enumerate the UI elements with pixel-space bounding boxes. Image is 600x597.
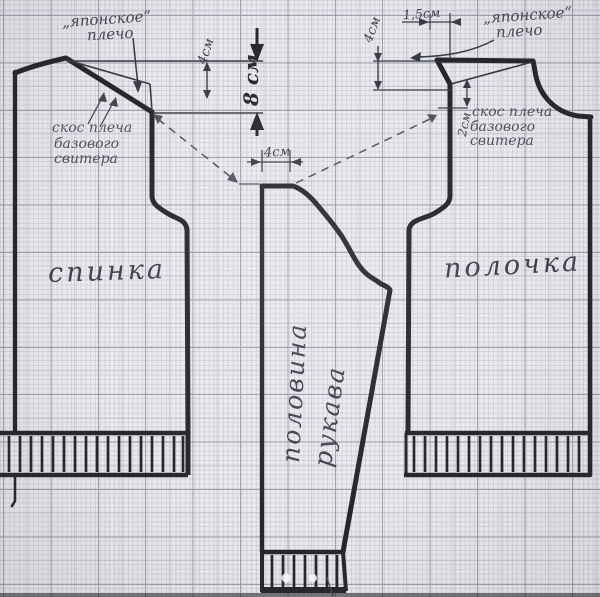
label-right-base-slope-line1: скос плеча — [472, 105, 552, 119]
front-base-sweater-slope-line — [451, 62, 532, 84]
dim-4cm-right — [374, 46, 382, 90]
photo-artifacts — [282, 574, 318, 583]
label-right-base-slope-line3: свитера — [470, 134, 534, 148]
extension-lines-right — [373, 61, 468, 108]
front-hem-ribbing — [404, 433, 589, 475]
guide-dashed-right — [296, 114, 437, 183]
pattern-photo: „японское“ плечо „японское“ плечо скос п… — [0, 0, 600, 597]
label-sleeve-piece-line1: половина — [278, 322, 310, 463]
measure-right-top-offset: 1,5см — [403, 7, 441, 22]
back-japanese-shoulder-pointer — [133, 38, 142, 93]
label-left-base-slope-line2: базового — [54, 137, 119, 151]
dim-2cm-right — [463, 79, 471, 107]
label-left-shoulder-type-line2: плечо — [87, 26, 134, 43]
measure-sleeve-top-width: 4см — [264, 145, 291, 160]
dim-4cm-left — [203, 62, 211, 99]
pattern-drawing — [0, 0, 600, 597]
back-hem-ribbing — [0, 431, 188, 475]
label-right-base-slope-line2: базового — [470, 120, 535, 134]
label-left-base-slope-line1: скос плеча — [52, 121, 132, 135]
photo-bottom-edge — [0, 593, 600, 597]
guide-dashed-left — [153, 114, 260, 184]
label-right-shoulder-type-line2: плечо — [496, 23, 543, 40]
sleeve-cuff-ribbing — [260, 552, 346, 592]
label-back-piece: спинка — [48, 256, 167, 287]
label-front-piece: полочка — [443, 248, 581, 282]
measure-center-depth: 8 см — [241, 54, 261, 106]
label-left-base-slope-line3: свитера — [54, 152, 118, 166]
